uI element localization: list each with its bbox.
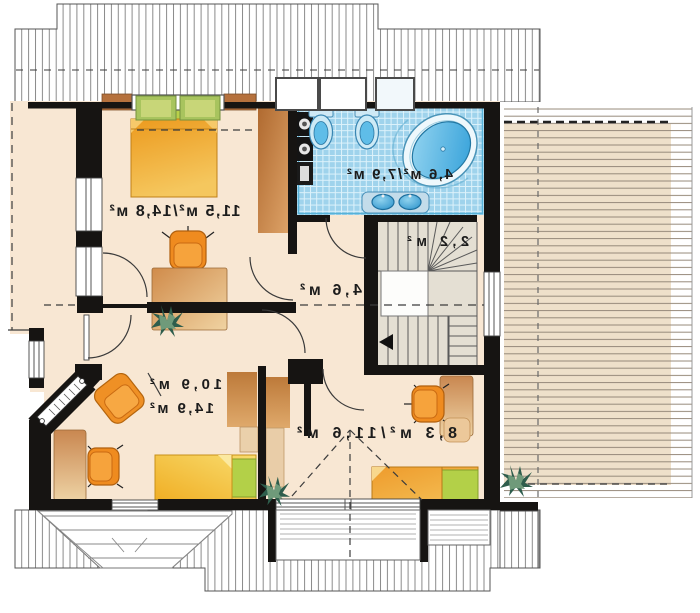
- svg-text:4,6 м²/7,9 м²: 4,6 м²/7,9 м²: [347, 166, 453, 183]
- svg-text:11,5 м²/14,8 м²: 11,5 м²/14,8 м²: [110, 203, 241, 220]
